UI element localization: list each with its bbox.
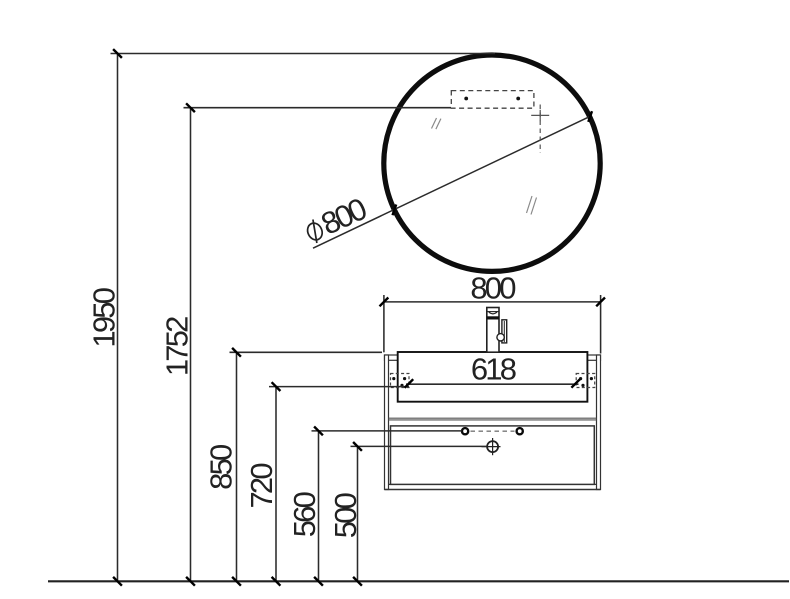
svg-text:800: 800: [470, 270, 516, 305]
svg-text:850: 850: [204, 444, 239, 490]
svg-text:1752: 1752: [160, 317, 195, 376]
svg-text:1950: 1950: [87, 287, 122, 347]
svg-text:560: 560: [287, 491, 322, 537]
svg-text:500: 500: [328, 492, 363, 538]
svg-text:618: 618: [471, 352, 516, 387]
svg-text:720: 720: [244, 463, 279, 509]
